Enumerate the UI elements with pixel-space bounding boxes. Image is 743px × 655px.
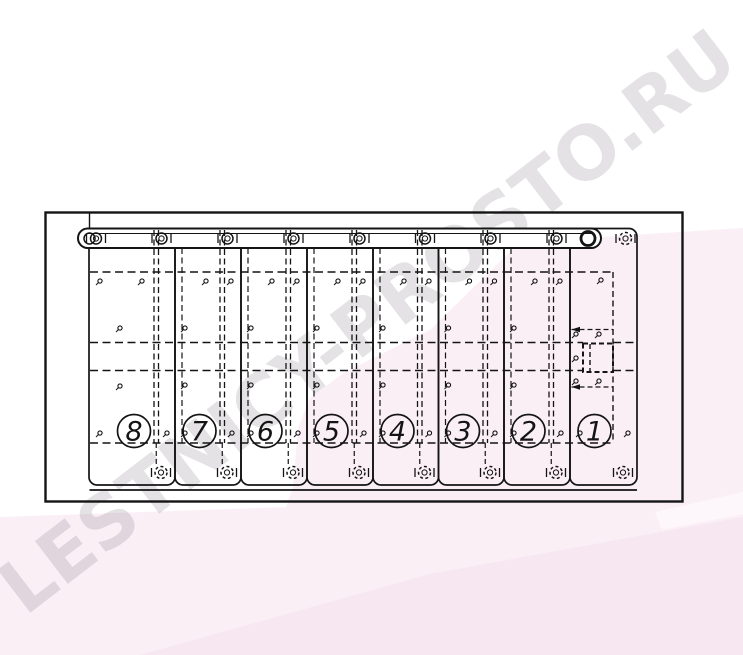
screw-hole-circle (183, 383, 187, 387)
screw-hole-tail (138, 283, 140, 285)
screw-hole-tail (334, 283, 336, 285)
step-number-label: 2 (520, 417, 537, 448)
screw-hole-circle (270, 279, 274, 283)
screw-hole-circle (336, 279, 340, 283)
screw-hole (293, 279, 299, 285)
screw-hole-circle (140, 279, 144, 283)
screw-hole (116, 326, 122, 332)
screw-hole (116, 384, 122, 390)
step-number-label: 8 (125, 417, 142, 448)
screw-hole-circle (118, 326, 122, 330)
screw-hole (96, 279, 102, 285)
screw-hole-tail (227, 283, 229, 285)
screw-hole (202, 279, 208, 285)
screw-hole-tail (96, 435, 98, 437)
step-number-label: 4 (389, 417, 406, 448)
screw-hole-circle (98, 279, 102, 283)
stairs-technical-drawing: LESTNICY-PROSTO.RU 87654321 (0, 0, 743, 655)
screw-hole (334, 279, 340, 285)
screw-hole-tail (294, 435, 296, 437)
step-number-label: 6 (257, 417, 274, 448)
screw-hole-tail (116, 330, 118, 332)
screw-hole-circle (204, 279, 208, 283)
screw-hole-tail (293, 283, 295, 285)
screw-hole (138, 279, 144, 285)
screw-hole (96, 431, 102, 437)
screw-hole-tail (116, 388, 118, 390)
screw-hole-tail (202, 283, 204, 285)
screw-hole-tail (96, 283, 98, 285)
step-number-label: 1 (586, 417, 603, 448)
screw-hole-circle (98, 431, 102, 435)
screw-hole-circle (183, 326, 187, 330)
screw-hole-circle (118, 384, 122, 388)
screw-hole (268, 279, 274, 285)
screw-hole-circle (229, 279, 233, 283)
step-number-label: 3 (454, 417, 471, 448)
screw-hole-circle (249, 326, 253, 330)
screw-hole (227, 279, 233, 285)
screw-hole-tail (268, 283, 270, 285)
step-number-label: 7 (191, 417, 208, 448)
step-number-badge: 8 (118, 415, 151, 448)
screw-hole-circle (295, 279, 299, 283)
step-number-label: 5 (323, 417, 340, 448)
